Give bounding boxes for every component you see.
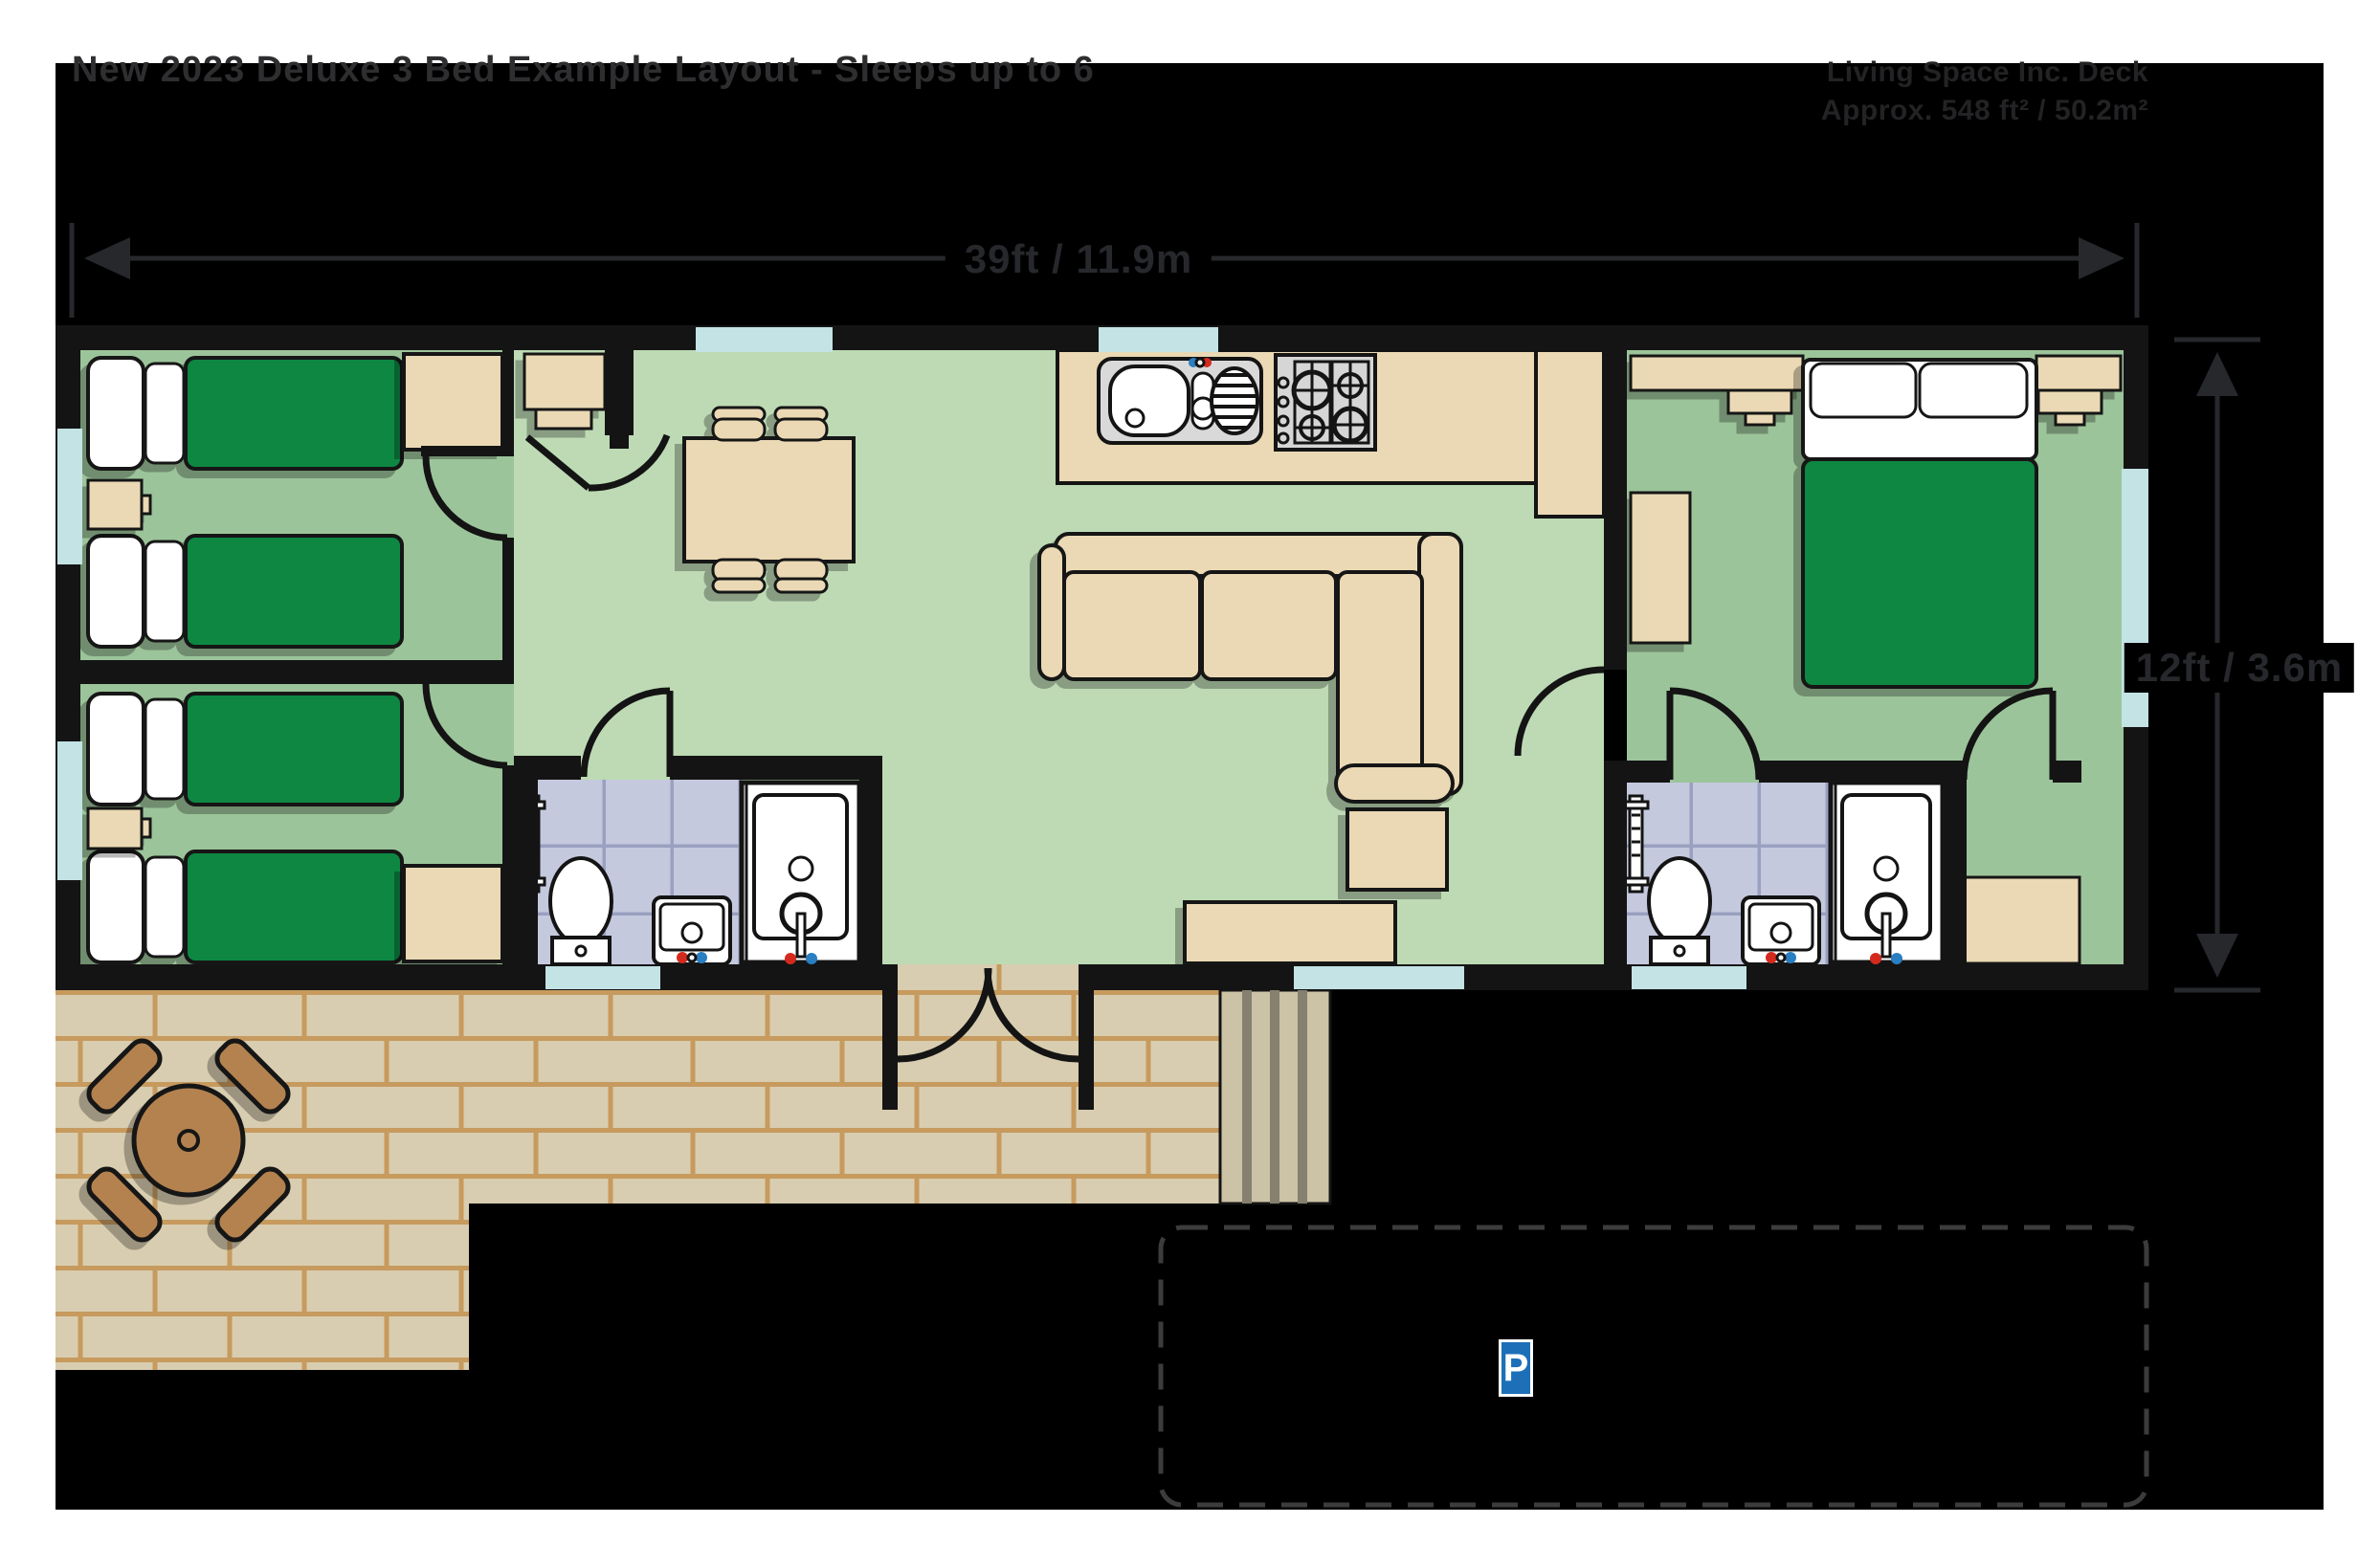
window-icon <box>1294 966 1464 989</box>
parking-sign-icon: P <box>1499 1339 1533 1397</box>
dining-chair-icon <box>775 408 827 440</box>
window-icon <box>1632 966 1746 989</box>
washbasin-icon <box>654 897 730 964</box>
plan-info: Living Space Inc. Deck Approx. 548 ft² /… <box>1821 54 2148 130</box>
deck-steps <box>1220 990 1330 1204</box>
info-line-2: Approx. 548 ft² / 50.2m² <box>1821 92 2148 130</box>
footstool-icon <box>1347 809 1447 890</box>
tv-unit-icon <box>1185 902 1395 963</box>
hob-icon <box>1276 355 1375 450</box>
floorplan-page: New 2023 Deluxe 3 Bed Example Layout - S… <box>0 0 2380 1568</box>
window-icon <box>1099 327 1218 352</box>
wardrobe-icon <box>404 354 502 450</box>
toilet-icon <box>1649 858 1710 964</box>
info-line-1: Living Space Inc. Deck <box>1821 54 2148 92</box>
window-icon <box>57 741 82 880</box>
depth-dimension-label: 12ft / 3.6m <box>2124 643 2354 693</box>
hall-cupboard-icon <box>524 354 605 429</box>
deck-area <box>56 964 1330 1370</box>
shower-icon <box>742 783 859 964</box>
window-icon <box>696 327 833 352</box>
round-table-icon <box>134 1086 243 1195</box>
toilet-icon <box>550 858 612 964</box>
single-bed-icon <box>88 851 402 962</box>
window-icon <box>57 429 82 564</box>
kitchen-sink-icon <box>1099 358 1263 443</box>
shower-icon <box>1831 783 1943 964</box>
dining-chair-icon <box>713 408 765 440</box>
dining-table-icon <box>684 438 854 562</box>
kitchen-tall-unit <box>1536 350 1604 517</box>
wardrobe-icon <box>404 866 502 961</box>
double-bed-icon <box>1803 360 2036 687</box>
dressing-unit-icon <box>1631 493 1690 643</box>
single-bed-icon <box>88 694 402 805</box>
page-title: New 2023 Deluxe 3 Bed Example Layout - S… <box>72 50 1095 91</box>
bedside-table-icon <box>88 808 150 849</box>
washbasin-icon <box>1743 897 1819 964</box>
dining-chair-icon <box>775 560 827 592</box>
storage-bench-icon <box>1954 877 2080 963</box>
window-icon <box>545 966 660 989</box>
dining-chair-icon <box>713 560 765 592</box>
single-bed-icon <box>88 358 402 469</box>
width-dimension-label: 39ft / 11.9m <box>945 234 1212 284</box>
single-bed-icon <box>88 536 402 647</box>
parking-bay-outline <box>1161 1227 2146 1505</box>
bedside-table-icon <box>88 480 150 529</box>
